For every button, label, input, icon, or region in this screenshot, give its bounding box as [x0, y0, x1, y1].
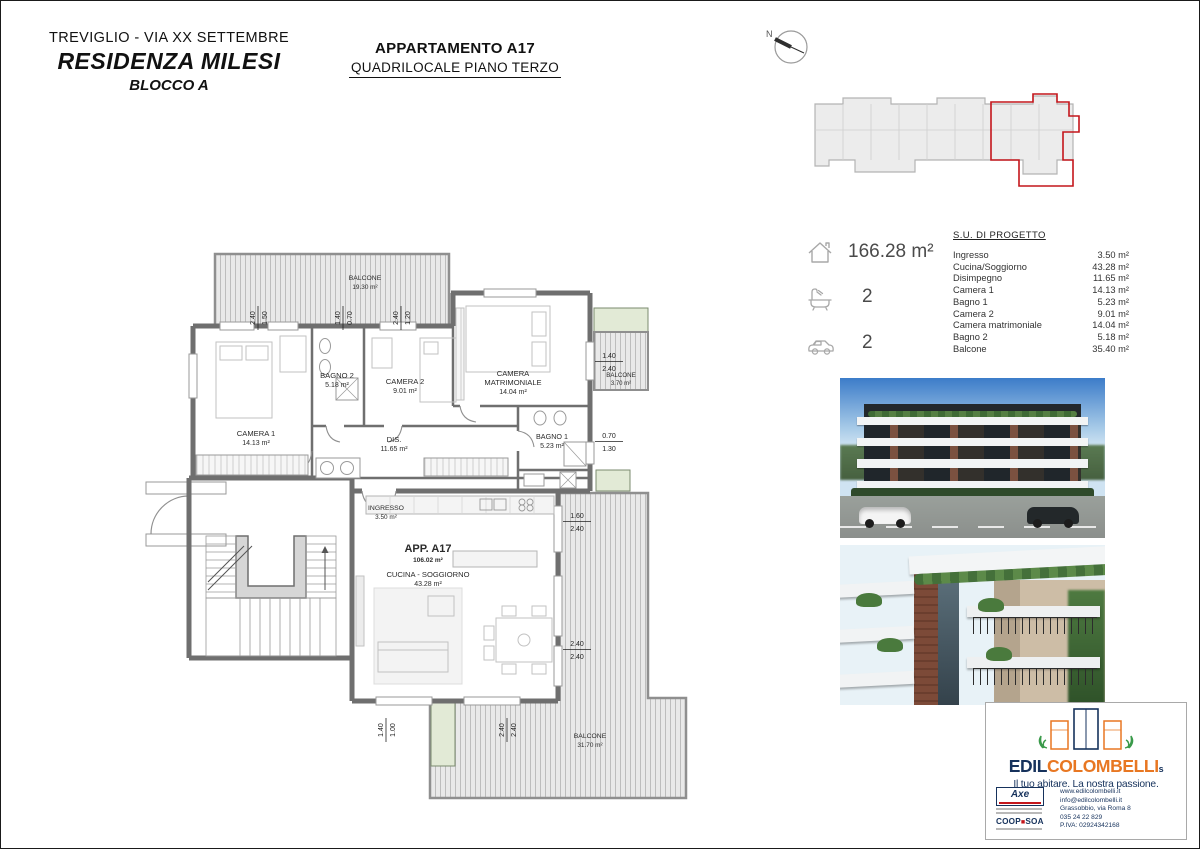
room-label: BAGNO 2 [320, 371, 354, 380]
room-label: BAGNO 1 [536, 432, 568, 441]
svg-text:1.30: 1.30 [602, 446, 616, 453]
svg-text:2.40: 2.40 [499, 723, 506, 737]
room-label: BALCONE [606, 372, 636, 379]
planter [594, 308, 648, 332]
balcony-plant [877, 638, 903, 652]
plant-flourish [1125, 736, 1133, 748]
render-photo-balcony-detail [840, 545, 1105, 705]
svg-text:43.28 m²: 43.28 m² [414, 581, 442, 588]
svg-text:14.04 m²: 14.04 m² [499, 389, 527, 396]
table-row: Ingresso3.50 m² [953, 250, 1129, 262]
svg-text:1.40: 1.40 [602, 353, 616, 360]
room-label: BALCONE [349, 275, 382, 282]
builder-logo-box: EDILCOLOMBELLIs Il tuo abitare. La nostr… [985, 702, 1187, 840]
table-row: Camera matrimoniale14.04 m² [953, 320, 1129, 332]
svg-text:2.40: 2.40 [393, 311, 400, 325]
svg-text:3.70 m²: 3.70 m² [611, 381, 631, 387]
svg-text:1.60: 1.60 [570, 513, 584, 520]
svg-text:1.40: 1.40 [378, 723, 385, 737]
project-residence: RESIDENZA MILESI [34, 48, 304, 75]
apartment-subtitle: QUADRILOCALE PIANO TERZO [349, 57, 561, 78]
contact-email: info@edilcolombelli.it [1060, 797, 1178, 806]
svg-text:1.20: 1.20 [405, 311, 412, 325]
room-label: CAMERA [497, 369, 530, 378]
balcony-plant [856, 593, 882, 607]
building-elevation [864, 404, 1081, 497]
table-row: Bagno 15.23 m² [953, 297, 1129, 309]
svg-text:19.30 m²: 19.30 m² [352, 284, 377, 291]
project-location: TREVIGLIO - VIA XX SETTEMBRE [34, 30, 304, 46]
spec-summary: 166.28 m² 2 2 [800, 238, 950, 358]
table-row: Cucina/Soggiorno43.28 m² [953, 262, 1129, 274]
house-icon [806, 240, 834, 266]
spec-parking: 2 [862, 332, 873, 354]
certification-logos: Axe COOP■SOA [996, 787, 1054, 831]
dark-car [1027, 507, 1079, 524]
planter [596, 470, 630, 491]
table-row: Disimpegno11.65 m² [953, 273, 1129, 285]
table-row: Balcone35.40 m² [953, 344, 1129, 356]
svg-text:0.70: 0.70 [347, 311, 354, 325]
bathtub-icon [806, 286, 834, 312]
svg-text:2.40: 2.40 [511, 723, 518, 737]
coop-soa-cert-logo: COOP■SOA [996, 817, 1054, 826]
contact-address: Grassobbio, via Roma 8 [1060, 805, 1178, 814]
table-row: Bagno 25.18 m² [953, 332, 1129, 344]
surface-table-title: S.U. DI PROGETTO [953, 230, 1129, 241]
balcony-railing [973, 617, 1098, 634]
balcony-plant [986, 647, 1012, 661]
axe-cert-logo: Axe [996, 787, 1044, 806]
table-row: Camera 114.13 m² [953, 285, 1129, 297]
apartment-title: APPARTAMENTO A17 [330, 40, 580, 57]
table-row: Camera 29.01 m² [953, 309, 1129, 321]
planter [431, 702, 455, 766]
surface-table: S.U. DI PROGETTO Ingresso3.50 m² Cucina/… [953, 230, 1129, 355]
svg-text:2.40: 2.40 [570, 654, 584, 661]
key-plan-footprint [815, 96, 1073, 174]
svg-text:14.13 m²: 14.13 m² [242, 440, 270, 447]
room-label: CAMERA 1 [237, 429, 275, 438]
plant-flourish [1039, 736, 1047, 748]
car-icon [806, 334, 836, 358]
svg-text:1.00: 1.00 [390, 723, 397, 737]
svg-text:11.65 m²: 11.65 m² [380, 446, 408, 453]
contact-website: www.edilcolombelli.it [1060, 788, 1178, 797]
balcony-railing [973, 668, 1098, 685]
key-plan [795, 68, 1095, 203]
svg-text:2.40: 2.40 [570, 641, 584, 648]
svg-text:0.70: 0.70 [602, 433, 616, 440]
window-strip [938, 580, 959, 705]
north-label: N [766, 29, 773, 39]
svg-text:1.50: 1.50 [262, 311, 269, 325]
render-photo-building-front [840, 378, 1105, 538]
room-label: CUCINA - SOGGIORNO [386, 570, 469, 579]
apartment-label: APP. A17 [404, 543, 451, 555]
svg-text:1.40: 1.40 [335, 311, 342, 325]
builder-logo-icon [1031, 706, 1141, 752]
wardrobe [196, 455, 308, 475]
room-label: BALCONE [574, 733, 607, 740]
svg-text:31.70 m²: 31.70 m² [577, 742, 602, 749]
white-car [859, 507, 911, 524]
room-label: INGRESSO [368, 505, 404, 512]
room-label: CAMERA 2 [386, 377, 424, 386]
svg-text:5.18 m²: 5.18 m² [325, 382, 349, 389]
svg-text:5.23 m²: 5.23 m² [540, 443, 564, 450]
spec-bathrooms: 2 [862, 286, 873, 308]
project-header: TREVIGLIO - VIA XX SETTEMBRE RESIDENZA M… [34, 30, 304, 94]
porch-canopy [146, 482, 226, 494]
svg-text:2.40: 2.40 [570, 526, 584, 533]
laundry-fixtures [316, 458, 360, 478]
svg-text:3.50 m²: 3.50 m² [375, 514, 397, 521]
project-block: BLOCCO A [34, 77, 304, 94]
svg-text:MATRIMONIALE: MATRIMONIALE [484, 378, 541, 387]
svg-text:9.01 m²: 9.01 m² [393, 388, 417, 395]
contact-vat: P.IVA: 02924342168 [1060, 822, 1178, 831]
spec-area-total: 166.28 m² [848, 241, 934, 263]
builder-wordmark: EDILCOLOMBELLIs [986, 758, 1186, 778]
entry-door-arc [151, 496, 189, 534]
contact-phone: 035 24 22 829 [1060, 814, 1178, 823]
floor-plan: BALCONE 19.30 m² CAMERA 1 14.13 m² BAGNO… [128, 246, 693, 816]
contact-info: www.edilcolombelli.it info@edilcolombell… [1054, 787, 1178, 831]
room-label: DIS. [387, 435, 402, 444]
svg-text:2.40: 2.40 [602, 366, 616, 373]
apartment-header: APPARTAMENTO A17 QUADRILOCALE PIANO TERZ… [330, 40, 580, 78]
wardrobe [424, 458, 508, 476]
svg-text:2.40: 2.40 [250, 311, 257, 325]
balcony-plant [978, 598, 1004, 612]
svg-text:106.02 m²: 106.02 m² [413, 557, 443, 564]
